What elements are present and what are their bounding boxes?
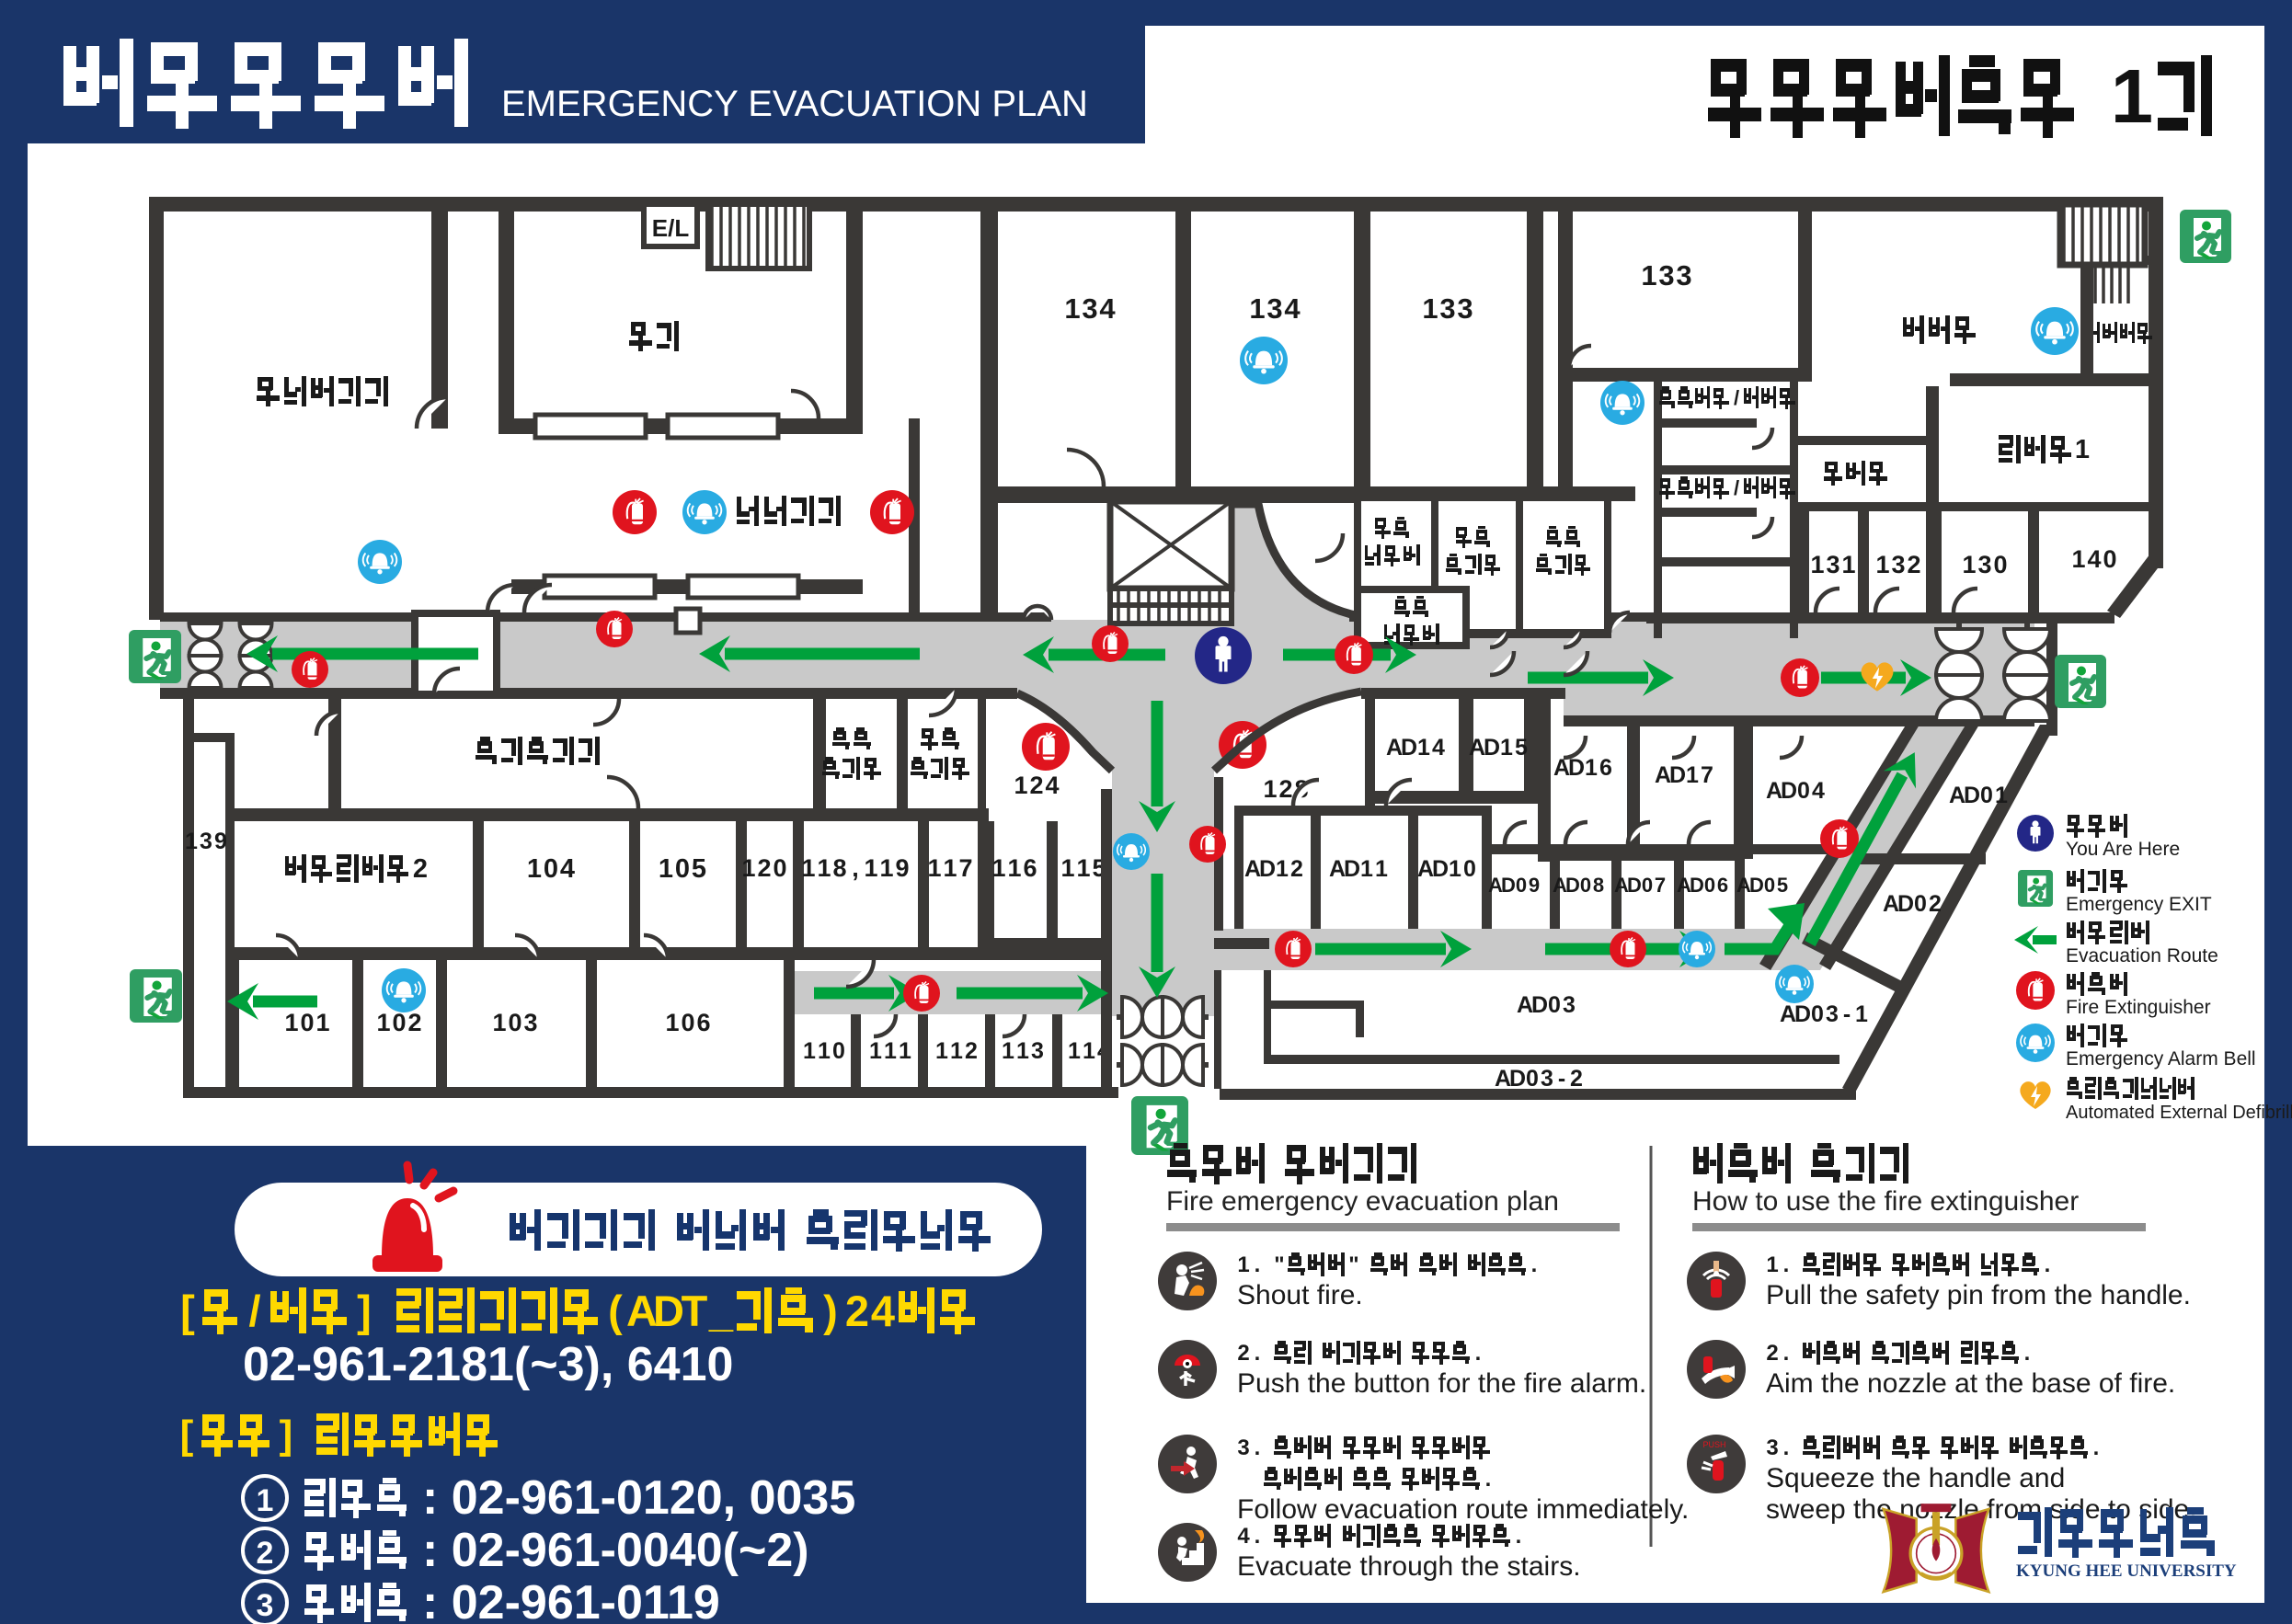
svg-text:1: 1 — [1995, 783, 2008, 808]
svg-text:1: 1 — [1686, 762, 1699, 788]
svg-text:1: 1 — [1422, 292, 1438, 325]
svg-text:3: 3 — [1457, 292, 1473, 325]
svg-text:1: 1 — [1962, 551, 1976, 578]
svg-text:1: 1 — [1375, 856, 1388, 882]
svg-text:3: 3 — [1676, 259, 1691, 292]
svg-text:D: D — [1565, 874, 1580, 897]
svg-text:1: 1 — [899, 1038, 911, 1064]
svg-text:2: 2 — [407, 1009, 421, 1036]
svg-text:Emergency EXIT: Emergency EXIT — [2066, 894, 2212, 915]
svg-text:1: 1 — [1016, 1038, 1029, 1064]
svg-text:1: 1 — [1641, 259, 1656, 292]
svg-text:D: D — [1344, 856, 1360, 882]
svg-text:1: 1 — [818, 1038, 831, 1064]
svg-text:0: 0 — [1914, 891, 1927, 917]
svg-text:1: 1 — [1449, 856, 1461, 882]
svg-text:]: ] — [280, 1412, 293, 1458]
svg-text:[: [ — [180, 1412, 194, 1458]
svg-text:1: 1 — [1766, 1252, 1778, 1277]
svg-text:1: 1 — [935, 1038, 948, 1064]
svg-text:: 02-961-0119: : 02-961-0119 — [422, 1576, 720, 1624]
svg-text:1: 1 — [1068, 1038, 1081, 1064]
svg-text:/: / — [248, 1287, 260, 1335]
svg-text:Emergency Alarm Bell: Emergency Alarm Bell — [2066, 1048, 2256, 1069]
svg-text:D: D — [1897, 891, 1914, 917]
svg-text:1: 1 — [884, 1038, 897, 1064]
svg-text:1: 1 — [1360, 856, 1373, 882]
svg-text:1: 1 — [257, 1483, 274, 1518]
svg-text:0: 0 — [773, 854, 786, 882]
svg-text:1: 1 — [665, 1009, 679, 1036]
svg-text:4: 4 — [1812, 778, 1825, 804]
svg-text:4: 4 — [1045, 772, 1059, 799]
svg-text:/: / — [1734, 386, 1739, 409]
svg-text:6: 6 — [1023, 854, 1037, 882]
svg-text:0: 0 — [508, 1009, 521, 1036]
svg-text:6: 6 — [1717, 874, 1728, 897]
svg-text:2: 2 — [965, 1038, 978, 1064]
svg-text:1: 1 — [1875, 551, 1889, 578]
svg-text:3: 3 — [1082, 292, 1097, 325]
svg-text:3: 3 — [1826, 551, 1839, 578]
svg-text:1: 1 — [801, 854, 815, 882]
svg-text:: 02-961-0120, 0035: : 02-961-0120, 0035 — [422, 1471, 855, 1525]
svg-text:D: D — [1259, 856, 1276, 882]
svg-text:1: 1 — [376, 1009, 390, 1036]
svg-text:3: 3 — [1541, 1066, 1553, 1092]
svg-text:.: . — [2045, 1252, 2051, 1277]
svg-text:(: ( — [608, 1287, 623, 1335]
svg-text:.: . — [1255, 1252, 1261, 1277]
svg-text:1: 1 — [879, 854, 893, 882]
svg-text:4: 4 — [1099, 292, 1116, 325]
svg-text:/: / — [1734, 476, 1739, 499]
svg-text:1: 1 — [315, 1009, 329, 1036]
svg-text:0: 0 — [1797, 778, 1810, 804]
svg-text:3: 3 — [1658, 259, 1674, 292]
svg-text:Push the button for the fire a: Push the button for the fire alarm. — [1237, 1368, 1646, 1399]
svg-text:02-961-2181(~3), 6410: 02-961-2181(~3), 6410 — [243, 1338, 733, 1391]
svg-text:0: 0 — [1764, 874, 1775, 897]
svg-text:.: . — [2093, 1435, 2100, 1460]
svg-text:.: . — [1475, 1341, 1482, 1366]
svg-text:6: 6 — [696, 1009, 710, 1036]
svg-text:.: . — [1783, 1341, 1790, 1366]
svg-text:D: D — [1432, 856, 1449, 882]
svg-text:D: D — [1401, 735, 1417, 761]
svg-text:3: 3 — [257, 1588, 274, 1623]
svg-text:0: 0 — [1811, 1001, 1824, 1027]
svg-text:Squeeze the handle and: Squeeze the handle and — [1766, 1463, 2065, 1493]
svg-text:.: . — [1783, 1252, 1790, 1277]
svg-text:9: 9 — [895, 854, 909, 882]
svg-text:1: 1 — [1810, 551, 1824, 578]
svg-text:_: _ — [708, 1287, 734, 1335]
svg-text:1: 1 — [1002, 1038, 1014, 1064]
svg-text:D: D — [1509, 1066, 1526, 1092]
svg-text:1: 1 — [1841, 551, 1855, 578]
svg-text:.: . — [1255, 1524, 1261, 1549]
svg-text:4: 4 — [560, 854, 575, 884]
svg-text:1: 1 — [2111, 53, 2153, 139]
svg-text:D: D — [1964, 783, 1980, 808]
svg-text:D: D — [1531, 992, 1548, 1018]
svg-text:,: , — [852, 854, 859, 882]
svg-text:Evacuation Route: Evacuation Route — [2066, 945, 2218, 966]
svg-text:0: 0 — [1980, 783, 1993, 808]
svg-text:1: 1 — [1276, 856, 1289, 882]
svg-text:-: - — [1558, 1066, 1565, 1092]
svg-text:7: 7 — [1701, 762, 1713, 788]
svg-text:1: 1 — [527, 854, 542, 884]
svg-text:8: 8 — [1593, 874, 1604, 897]
svg-text:2: 2 — [1290, 856, 1303, 882]
svg-text:.: . — [1531, 1252, 1538, 1277]
svg-text:D: D — [1568, 755, 1585, 781]
svg-text:Evacuate through the stairs.: Evacuate through the stairs. — [1237, 1551, 1581, 1582]
svg-text:T: T — [682, 1287, 708, 1335]
svg-text:.: . — [1255, 1435, 1261, 1460]
svg-text:8: 8 — [832, 854, 846, 882]
svg-text:2: 2 — [845, 1287, 869, 1335]
svg-text:1: 1 — [1237, 1252, 1249, 1277]
svg-text:1: 1 — [1060, 854, 1074, 882]
svg-text:-: - — [1843, 1001, 1851, 1027]
svg-text:4: 4 — [1432, 735, 1445, 761]
svg-text:1: 1 — [2071, 545, 2085, 573]
svg-text:2: 2 — [257, 1536, 274, 1571]
svg-text:1: 1 — [1263, 775, 1277, 803]
svg-text:": " — [1274, 1252, 1284, 1277]
svg-text:1: 1 — [1249, 292, 1265, 325]
svg-text:1: 1 — [284, 1009, 298, 1036]
svg-text:D: D — [1501, 874, 1516, 897]
svg-text:1: 1 — [1076, 854, 1090, 882]
svg-text:0: 0 — [2103, 545, 2116, 573]
svg-text:4: 4 — [871, 1287, 895, 1335]
svg-text:0: 0 — [681, 1009, 694, 1036]
svg-text:0: 0 — [1516, 874, 1527, 897]
svg-text:Pull the safety pin from the h: Pull the safety pin from the handle. — [1766, 1280, 2191, 1310]
svg-text:.: . — [1516, 1524, 1522, 1549]
svg-text:0: 0 — [1993, 551, 2007, 578]
svg-text:1: 1 — [1083, 1038, 1095, 1064]
svg-text:5: 5 — [1515, 735, 1528, 761]
svg-text:.: . — [1783, 1435, 1790, 1460]
svg-text:KYUNG HEE UNIVERSITY: KYUNG HEE UNIVERSITY — [2016, 1561, 2237, 1581]
svg-text:3: 3 — [1439, 292, 1455, 325]
svg-text:1: 1 — [817, 854, 831, 882]
svg-text:2: 2 — [413, 854, 428, 884]
svg-text:Shout fire.: Shout fire. — [1237, 1280, 1363, 1310]
svg-text:.: . — [1485, 1467, 1492, 1492]
svg-text:7: 7 — [958, 854, 972, 882]
svg-text:0: 0 — [300, 1009, 314, 1036]
svg-text:1: 1 — [950, 1038, 963, 1064]
svg-text:1: 1 — [185, 829, 198, 854]
svg-text:]: ] — [357, 1287, 372, 1335]
svg-text:2: 2 — [1907, 551, 1920, 578]
svg-text:1: 1 — [991, 854, 1005, 882]
svg-text:2: 2 — [1570, 1066, 1583, 1092]
svg-text:EMERGENCY EVACUATION PLAN: EMERGENCY EVACUATION PLAN — [501, 84, 1088, 124]
svg-text:3: 3 — [1766, 1435, 1778, 1460]
svg-text:1: 1 — [943, 854, 957, 882]
svg-text:D: D — [1669, 762, 1686, 788]
svg-text:3: 3 — [1031, 1038, 1044, 1064]
svg-text:5: 5 — [1777, 874, 1788, 897]
svg-text:.: . — [1255, 1341, 1261, 1366]
svg-text:D: D — [1484, 735, 1500, 761]
svg-text:3: 3 — [1563, 992, 1576, 1018]
svg-text:3: 3 — [1826, 1001, 1839, 1027]
svg-text:D: D — [1627, 874, 1642, 897]
svg-text:D: D — [1690, 874, 1704, 897]
svg-text:0: 0 — [1704, 874, 1715, 897]
svg-text:Follow evacuation route immedi: Follow evacuation route immediately. — [1237, 1494, 1689, 1525]
svg-text:You Are Here: You Are Here — [2066, 839, 2180, 860]
svg-text:3: 3 — [523, 1009, 537, 1036]
svg-text:3: 3 — [200, 829, 212, 854]
svg-text:9: 9 — [214, 829, 227, 854]
svg-text:2: 2 — [1278, 775, 1292, 803]
svg-text:1: 1 — [1007, 854, 1021, 882]
svg-text:D: D — [1794, 1001, 1811, 1027]
svg-text:4: 4 — [2087, 545, 2101, 573]
svg-text:1: 1 — [927, 854, 941, 882]
svg-text:1: 1 — [864, 854, 877, 882]
svg-text:0: 0 — [1548, 992, 1561, 1018]
svg-text:4: 4 — [1284, 292, 1301, 325]
svg-text:E/L: E/L — [652, 214, 690, 242]
svg-text:2: 2 — [1029, 772, 1043, 799]
svg-text:[: [ — [180, 1287, 195, 1335]
svg-text:1: 1 — [741, 854, 755, 882]
svg-text:2: 2 — [757, 854, 771, 882]
svg-text:2: 2 — [1929, 891, 1942, 917]
svg-text:1: 1 — [659, 854, 673, 884]
svg-text:Fire Extinguisher: Fire Extinguisher — [2066, 997, 2211, 1018]
svg-text:D: D — [1781, 778, 1797, 804]
svg-text:2: 2 — [1237, 1341, 1249, 1366]
svg-text:PUSH: PUSH — [1702, 1440, 1725, 1449]
svg-text:7: 7 — [1655, 874, 1666, 897]
svg-text:1: 1 — [2075, 435, 2090, 464]
svg-text:D: D — [653, 1287, 684, 1335]
svg-text:: 02-961-0040(~2): : 02-961-0040(~2) — [422, 1524, 809, 1577]
svg-text:0: 0 — [832, 1038, 845, 1064]
svg-text:1: 1 — [803, 1038, 816, 1064]
svg-text:4: 4 — [1237, 1524, 1250, 1549]
svg-text:How to use the fire extinguish: How to use the fire extinguisher — [1692, 1186, 2079, 1217]
svg-text:": " — [1348, 1252, 1358, 1277]
svg-text:0: 0 — [1580, 874, 1591, 897]
svg-text:1: 1 — [1014, 772, 1027, 799]
svg-text:Aim the nozzle at the base of: Aim the nozzle at the base of fire. — [1766, 1368, 2175, 1399]
svg-text:1: 1 — [869, 1038, 882, 1064]
svg-text:3: 3 — [1237, 1435, 1249, 1460]
svg-text:5: 5 — [692, 854, 706, 884]
svg-text:.: . — [2024, 1341, 2031, 1366]
svg-text:1: 1 — [1417, 735, 1430, 761]
svg-text:1: 1 — [492, 1009, 506, 1036]
svg-text:0: 0 — [675, 854, 690, 884]
svg-text:0: 0 — [1463, 856, 1476, 882]
svg-text:9: 9 — [1529, 874, 1540, 897]
svg-text:0: 0 — [1526, 1066, 1539, 1092]
svg-text:3: 3 — [1266, 292, 1282, 325]
svg-text:D: D — [1749, 874, 1764, 897]
svg-text:3: 3 — [1891, 551, 1905, 578]
svg-text:0: 0 — [544, 854, 558, 884]
svg-text:Fire emergency evacuation plan: Fire emergency evacuation plan — [1166, 1186, 1559, 1217]
svg-text:1: 1 — [1855, 1001, 1868, 1027]
svg-text:0: 0 — [392, 1009, 406, 1036]
svg-text:Automated External Defibrillat: Automated External Defibrillators — [2066, 1103, 2292, 1123]
svg-text:0: 0 — [1642, 874, 1653, 897]
svg-text:3: 3 — [1977, 551, 1991, 578]
svg-text:2: 2 — [1766, 1341, 1778, 1366]
svg-text:1: 1 — [1064, 292, 1080, 325]
svg-text:6: 6 — [1599, 755, 1612, 781]
svg-text:1: 1 — [1585, 755, 1598, 781]
svg-text:1: 1 — [1500, 735, 1513, 761]
svg-text:): ) — [823, 1287, 838, 1335]
